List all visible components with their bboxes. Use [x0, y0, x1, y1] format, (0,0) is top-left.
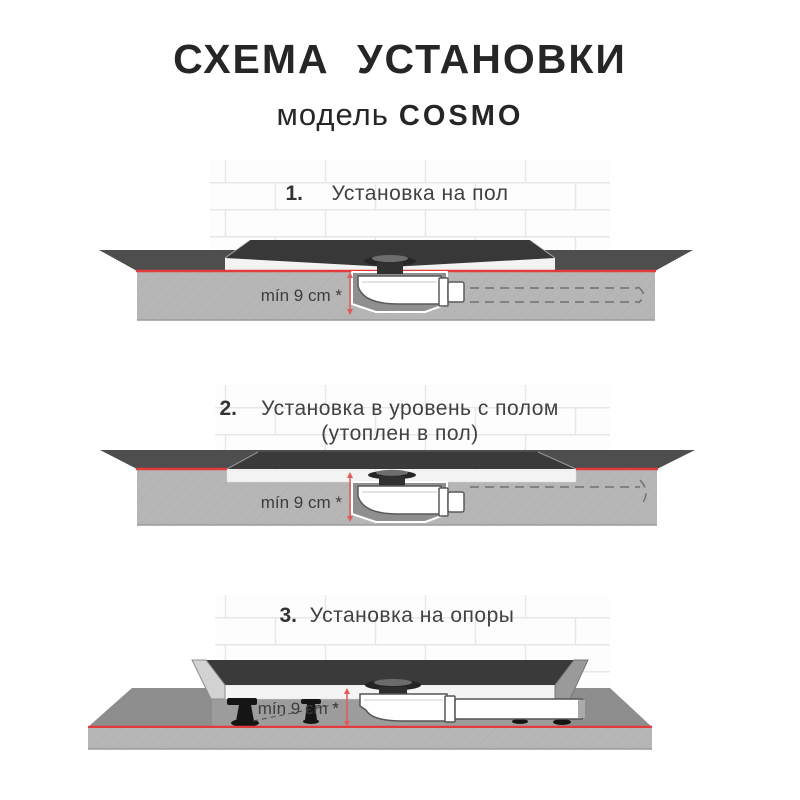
- siphon-outlet-pipe: [448, 282, 464, 302]
- siphon-outlet-collar: [439, 278, 448, 306]
- siphon-outlet-collar: [445, 696, 455, 722]
- diagram-install-flush: 2. Установка в уровень с полом (утоплен …: [0, 380, 800, 580]
- section-number: 2.: [219, 397, 237, 420]
- drain-cap-top: [376, 470, 408, 476]
- drain-neck: [379, 476, 405, 486]
- diagram-install-on-supports: 3. Установка на опоры: [0, 590, 800, 770]
- drain-neck: [377, 262, 403, 274]
- siphon-body: [358, 276, 441, 304]
- dimension-label: mín 9 cm *: [261, 286, 343, 305]
- drain-cap-top: [372, 255, 408, 262]
- section-title: Установка на опоры: [310, 604, 515, 627]
- dimension-label: mín 9 cm *: [261, 493, 343, 512]
- siphon-outlet-collar: [439, 488, 448, 516]
- installation-scheme-page: СХЕМА УСТАНОВКИ модельCOSMO 1. Установка…: [0, 0, 800, 800]
- model-label: модель: [277, 97, 389, 132]
- model-line: модельCOSMO: [0, 97, 800, 133]
- section-number: 1.: [285, 182, 303, 205]
- drain-pipe-end: [578, 700, 585, 718]
- section-number: 3.: [279, 604, 297, 627]
- dimension-label: mín 9 cm *: [258, 699, 340, 718]
- diagram-install-on-floor: 1. Установка на пол: [0, 155, 800, 370]
- drain-cap-top: [374, 679, 412, 686]
- model-name: COSMO: [399, 100, 524, 132]
- siphon-outlet-pipe: [448, 492, 464, 512]
- floor-slab-hatch: [88, 728, 652, 749]
- section-subtitle: (утоплен в пол): [321, 422, 479, 445]
- section-title: Установка в уровень с полом: [261, 397, 559, 420]
- page-title: СХЕМА УСТАНОВКИ: [0, 36, 800, 83]
- shower-tray-top-flush: [227, 452, 576, 469]
- section-title: Установка на пол: [331, 182, 508, 205]
- drain-pipe-horizontal: [455, 699, 583, 719]
- siphon-body: [360, 694, 447, 721]
- siphon-body: [358, 486, 441, 514]
